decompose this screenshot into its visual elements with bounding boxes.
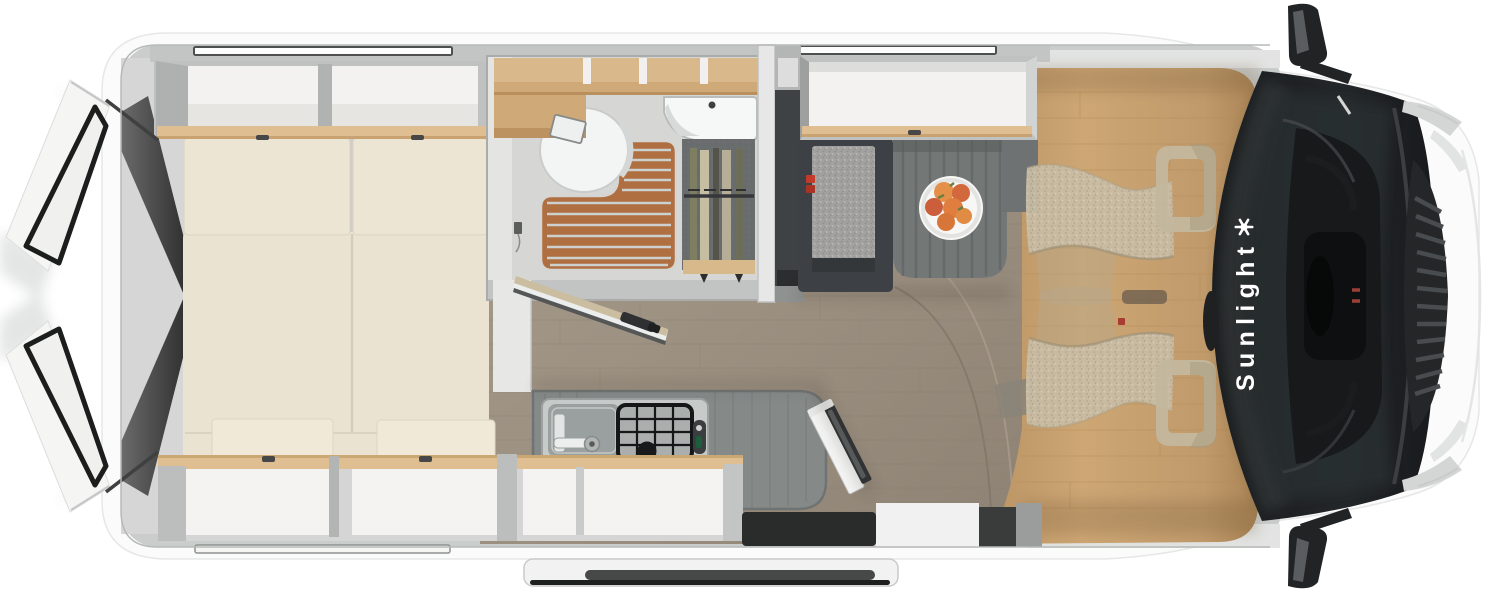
svg-text:Sunlight: Sunlight (1232, 241, 1260, 391)
